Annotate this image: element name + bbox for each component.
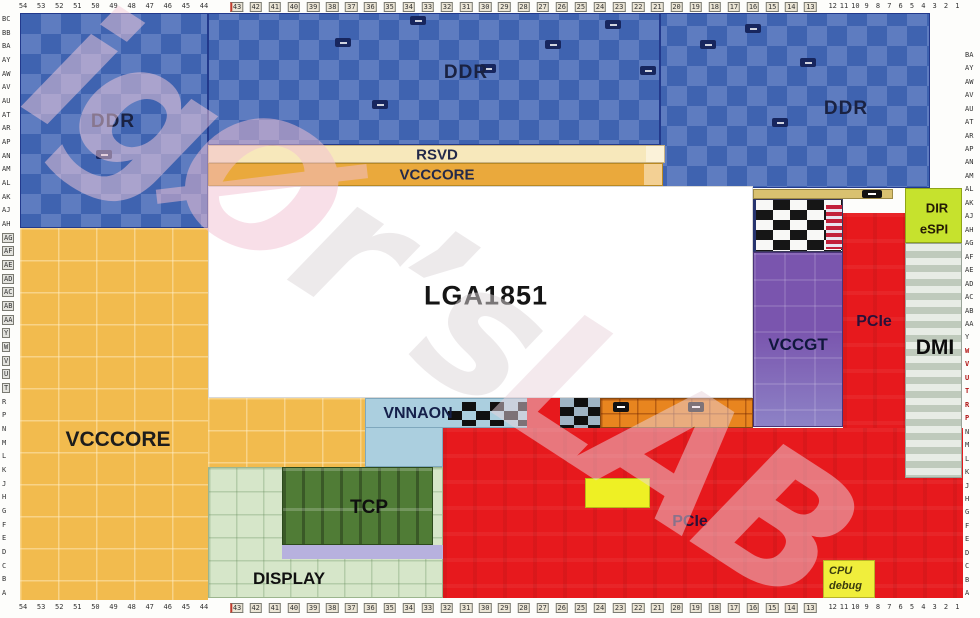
region-vnnaon-lower bbox=[365, 428, 443, 467]
cpu-debug-line2: debug bbox=[829, 580, 862, 592]
pin-strip-mid bbox=[560, 398, 600, 428]
region-lavender-strip bbox=[282, 545, 443, 559]
region-label-espi: eSPI bbox=[920, 222, 948, 237]
cpu-debug-line1: CPU bbox=[829, 565, 852, 577]
region-socket-lga1851: LGA1851 bbox=[208, 186, 753, 398]
region-label-dir: DIR bbox=[926, 201, 948, 216]
socket-pinmap-diagram: 5453525150494847464544434241403938373635… bbox=[0, 0, 980, 618]
region-label-pcie-right: PCIe bbox=[856, 313, 892, 331]
region-vcccore-bar: VCCCORE bbox=[208, 163, 663, 186]
pin-block bbox=[605, 20, 621, 29]
axis-left-rows: BCBBBAAYAWAVAUATARAPANAMALAKAJAHAGAFAEAD… bbox=[0, 12, 14, 604]
region-label-display: DISPLAY bbox=[253, 569, 325, 589]
region-label-vcccore-bar: VCCCORE bbox=[399, 167, 474, 184]
region-rsvd: RSVD bbox=[208, 145, 665, 163]
pin-block bbox=[335, 38, 351, 47]
pin-block bbox=[545, 40, 561, 49]
region-label-tcp: TCP bbox=[350, 497, 388, 519]
region-label-rsvd: RSVD bbox=[416, 147, 458, 164]
region-label-ddr-center: DDR bbox=[444, 62, 488, 84]
pin-block bbox=[862, 190, 882, 198]
region-ddr-left: DDR bbox=[20, 13, 208, 228]
region-cpu-debug: CPU debug bbox=[823, 560, 875, 598]
region-vcccore-left: VCCCORE bbox=[20, 228, 208, 600]
pin-block bbox=[640, 66, 656, 75]
pin-block bbox=[96, 150, 112, 159]
pin-block bbox=[745, 24, 761, 33]
pin-strip-vnnaon bbox=[448, 402, 530, 426]
region-pcie-right: PCIe bbox=[843, 213, 905, 428]
region-label-ddr-left: DDR bbox=[91, 111, 135, 133]
pin-block bbox=[772, 118, 788, 127]
region-dir-espi: DIR eSPI bbox=[905, 188, 962, 243]
region-tcp: TCP bbox=[282, 467, 433, 545]
region-label-cpu-debug: CPU debug bbox=[829, 564, 862, 594]
pin-block bbox=[700, 40, 716, 49]
region-label-socket: LGA1851 bbox=[424, 281, 548, 312]
pin-block bbox=[372, 100, 388, 109]
region-ddr-center: DDR bbox=[208, 13, 660, 145]
axis-right-rows: BAAYAWAVAUATARAPANAMALAKAJAHAGAFAEADACAB… bbox=[963, 12, 977, 604]
region-vccgt: VCCGT bbox=[753, 252, 843, 427]
region-label-vnnaon: VNNAON bbox=[383, 405, 452, 423]
region-vcccore-mid bbox=[208, 398, 365, 467]
region-label-dmi: DMI bbox=[916, 336, 955, 360]
region-label-ddr-right: DDR bbox=[824, 98, 868, 120]
region-dmi: DMI bbox=[905, 243, 962, 478]
pin-block bbox=[410, 16, 426, 25]
region-yellow-block bbox=[585, 478, 650, 508]
axis-bottom-columns: 5453525150494847464544434241403938373635… bbox=[14, 601, 963, 614]
pin-block bbox=[688, 402, 704, 412]
region-label-pcie-bottom: PCIe bbox=[672, 513, 708, 531]
pin-block-red bbox=[826, 205, 842, 249]
pin-block bbox=[613, 402, 629, 412]
region-pcie-bottom: PCIe bbox=[443, 428, 963, 598]
region-label-vccgt: VCCGT bbox=[768, 335, 828, 355]
region-pcie-riser bbox=[527, 398, 560, 429]
pin-block bbox=[800, 58, 816, 67]
region-label-vcccore-left: VCCCORE bbox=[65, 428, 170, 452]
axis-top-columns: 5453525150494847464544434241403938373635… bbox=[14, 0, 963, 13]
